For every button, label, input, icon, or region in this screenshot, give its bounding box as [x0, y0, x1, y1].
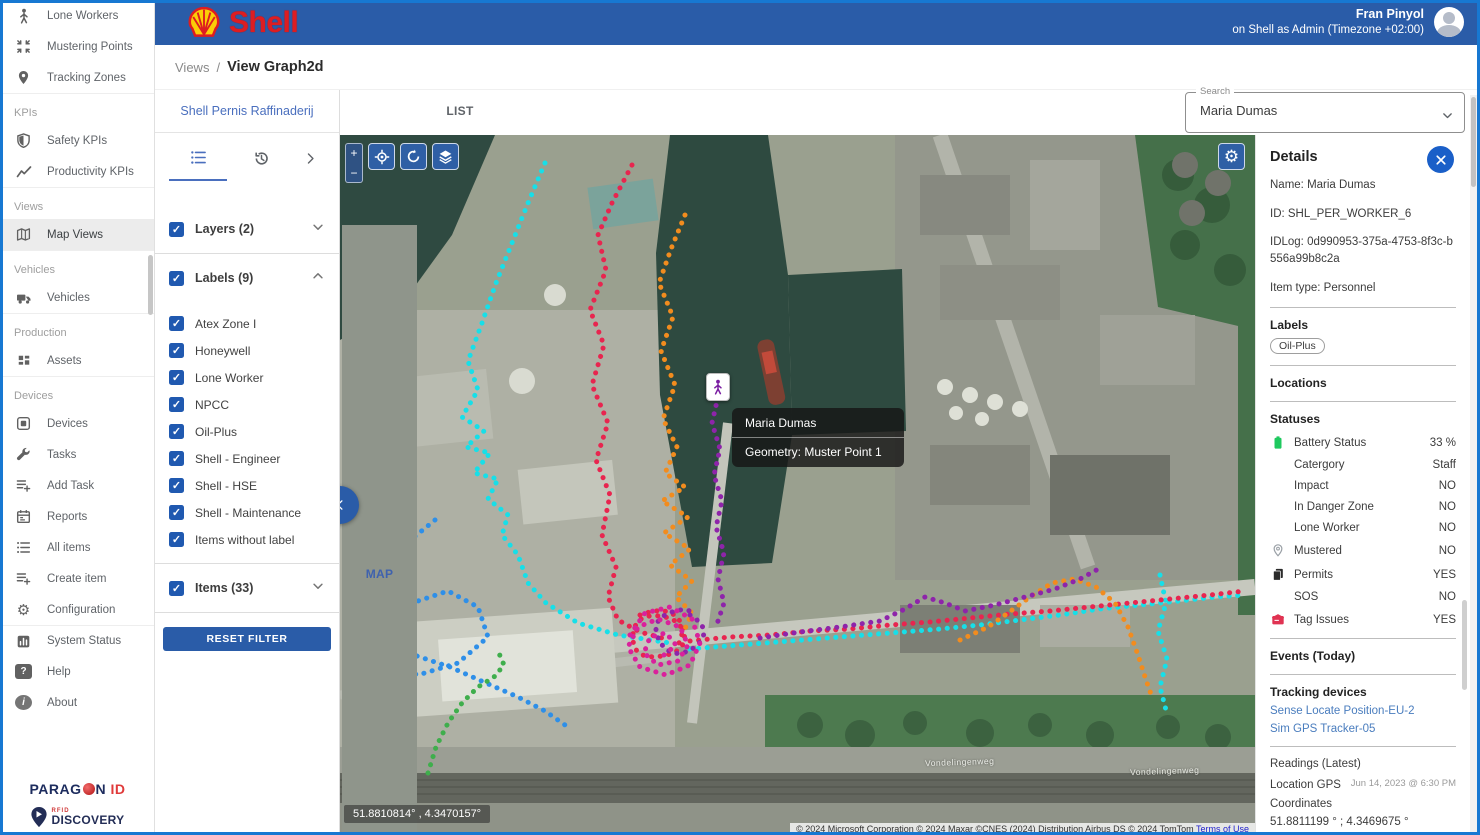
sidebar-item-assets[interactable]: Assets: [0, 345, 154, 376]
filter-panel: Shell Pernis Raffinaderij ✓ Layers (2) ✓…: [155, 90, 340, 835]
chevron-right-icon[interactable]: [295, 135, 325, 181]
reading-label: Coordinates: [1270, 796, 1341, 813]
chevron-down-icon[interactable]: [311, 220, 325, 239]
shell-wordmark: Shell: [229, 6, 298, 40]
terms-of-use-link[interactable]: Terms of Use: [1196, 824, 1249, 834]
cursor-coordinates: 51.8810814° , 4.3470157°: [344, 805, 490, 823]
refresh-button[interactable]: [400, 143, 427, 170]
map-canvas[interactable]: Vondelingenweg Vondelingenweg + − ⚙ Mari…: [340, 135, 1255, 835]
label-checkbox-shell-hse[interactable]: ✓Shell - HSE: [155, 472, 339, 499]
sidebar-scrollbar[interactable]: [148, 255, 153, 315]
discovery-pin-icon: [31, 807, 47, 827]
detail-id: ID: SHL_PER_WORKER_6: [1270, 206, 1456, 223]
filter-group-labels[interactable]: ✓ Labels (9): [155, 254, 339, 302]
filter-group-items[interactable]: ✓ Items (33): [155, 564, 339, 612]
map-tooltip: Maria Dumas Geometry: Muster Point 1: [732, 408, 904, 467]
sidebar-item-help[interactable]: ?Help: [0, 656, 154, 687]
shell-pecten-icon: [183, 4, 225, 42]
detail-name: Name: Maria Dumas: [1270, 177, 1456, 194]
map-attribution: © 2024 Microsoft Corporation © 2024 Maxa…: [790, 823, 1255, 835]
checkbox-icon[interactable]: ✓: [169, 271, 184, 286]
label-checkbox-items-without-label[interactable]: ✓Items without label: [155, 526, 339, 553]
page-title: View Graph2d: [227, 59, 323, 75]
details-scrollbar[interactable]: [1462, 600, 1467, 690]
filter-group-layers[interactable]: ✓ Layers (2): [155, 205, 339, 253]
chevron-up-icon[interactable]: [311, 269, 325, 288]
close-details-button[interactable]: [1427, 146, 1454, 173]
tracking-device-link[interactable]: Sim GPS Tracker-05: [1270, 723, 1456, 735]
sidebar: Lone Workers Mustering Points Tracking Z…: [0, 0, 155, 835]
filter-panel-tabs: [155, 133, 339, 183]
muster-pin-icon: [1270, 543, 1286, 558]
zoom-out-button[interactable]: −: [350, 166, 357, 180]
sidebar-item-add-task[interactable]: Add Task: [0, 470, 154, 501]
detail-item-type: Item type: Personnel: [1270, 280, 1456, 297]
label-checkbox-npcc[interactable]: ✓NPCC: [155, 391, 339, 418]
search-input[interactable]: [1198, 102, 1418, 119]
history-tab[interactable]: [232, 135, 290, 181]
zoom-in-button[interactable]: +: [350, 146, 357, 160]
tab-map[interactable]: MAP: [342, 225, 417, 835]
layers-button[interactable]: [432, 143, 459, 170]
checkbox-icon[interactable]: ✓: [169, 316, 184, 331]
sidebar-section-devices: Devices: [0, 376, 154, 408]
reading-coordinates: 51.8811199 ° ; 4.3469675 °: [1270, 814, 1456, 831]
sidebar-section-views: Views: [0, 187, 154, 219]
checkbox-icon[interactable]: ✓: [169, 370, 184, 385]
checkbox-icon[interactable]: ✓: [169, 424, 184, 439]
tracking-device-link[interactable]: Sense Locate Position-EU-2: [1270, 705, 1456, 717]
tag-icon: [1270, 612, 1286, 627]
bar-chart-icon: [15, 633, 32, 650]
label-checkbox-lone-worker[interactable]: ✓Lone Worker: [155, 364, 339, 391]
readings-header: Readings (Latest): [1270, 756, 1456, 773]
breadcrumb-parent[interactable]: Views: [175, 60, 209, 75]
info-icon: i: [15, 695, 32, 710]
truck-icon: [15, 289, 32, 306]
page-scrollbar[interactable]: [1470, 95, 1477, 832]
chevron-down-icon[interactable]: [311, 579, 325, 598]
status-row-tag-issues: Tag IssuesYES: [1270, 612, 1456, 627]
tooltip-geometry: Geometry: Muster Point 1: [732, 438, 904, 467]
list-plus-icon: [15, 570, 32, 587]
sidebar-item-safety-kpis[interactable]: Safety KPIs: [0, 125, 154, 156]
sidebar-logos: PARAGN ID RFIDDISCOVERY: [0, 781, 155, 827]
list-icon: [15, 539, 32, 556]
sidebar-section-kpis: KPIs: [0, 93, 154, 125]
checkbox-icon[interactable]: ✓: [169, 451, 184, 466]
filter-list-tab[interactable]: [169, 135, 227, 181]
view-tab-bar: MAP LIST Search: [340, 90, 1480, 135]
sidebar-section-vehicles: Vehicles: [0, 250, 154, 282]
sidebar-item-tracking-zones[interactable]: Tracking Zones: [0, 62, 154, 93]
user-menu[interactable]: Fran Pinyol on Shell as Admin (Timezone …: [1232, 6, 1464, 38]
user-name: Fran Pinyol: [1232, 6, 1424, 23]
app-window: Lone Workers Mustering Points Tracking Z…: [0, 0, 1480, 835]
sidebar-item-vehicles[interactable]: Vehicles: [0, 282, 154, 313]
map-pin-icon: [15, 69, 32, 86]
status-row-category: CatergoryStaff: [1270, 459, 1456, 471]
status-row-sos: SOSNO: [1270, 591, 1456, 603]
gear-icon: ⚙: [15, 601, 32, 618]
sidebar-item-mustering-points[interactable]: Mustering Points: [0, 31, 154, 62]
checkbox-icon[interactable]: ✓: [169, 478, 184, 493]
sidebar-item-label: Lone Workers: [47, 10, 118, 22]
label-checkbox-shell-engineer[interactable]: ✓Shell - Engineer: [155, 445, 339, 472]
paragon-o-icon: [83, 783, 95, 795]
question-icon: ?: [15, 664, 32, 679]
statuses-header: Statuses: [1270, 412, 1456, 426]
user-context: on Shell as Admin (Timezone +02:00): [1232, 23, 1424, 39]
shell-logo: Shell: [183, 4, 298, 42]
events-header: Events (Today): [1270, 649, 1456, 663]
label-chip[interactable]: Oil-Plus: [1270, 338, 1325, 354]
status-row-mustered: MusteredNO: [1270, 543, 1456, 558]
breadcrumb: Views / View Graph2d: [155, 45, 1480, 90]
sidebar-item-tasks[interactable]: Tasks: [0, 439, 154, 470]
grid-icon: [15, 352, 32, 369]
sidebar-item-all-items[interactable]: All items: [0, 532, 154, 563]
rfid-discovery-logo: RFIDDISCOVERY: [0, 807, 155, 827]
locate-button[interactable]: [368, 143, 395, 170]
search-box[interactable]: Search: [1185, 92, 1465, 133]
zoom-control[interactable]: + −: [345, 143, 363, 183]
sidebar-item-configuration[interactable]: ⚙Configuration: [0, 594, 154, 625]
map-settings-button[interactable]: ⚙: [1218, 143, 1245, 170]
sidebar-item-map-views[interactable]: Map Views: [0, 219, 154, 250]
device-icon: [15, 415, 32, 432]
sidebar-item-lone-workers[interactable]: Lone Workers: [0, 0, 154, 31]
label-filter-list: ✓Atex Zone I ✓Honeywell ✓Lone Worker ✓NP…: [155, 302, 339, 563]
reading-type: Location GPS: [1270, 777, 1341, 794]
checkbox-icon[interactable]: ✓: [169, 222, 184, 237]
status-row-danger-zone: In Danger ZoneNO: [1270, 501, 1456, 513]
tracking-devices-header: Tracking devices: [1270, 685, 1456, 699]
paragon-id-logo: PARAGN ID: [0, 781, 155, 797]
muster-arrows-icon: [15, 38, 32, 55]
sidebar-item-about[interactable]: iAbout: [0, 687, 154, 718]
checkbox-icon[interactable]: ✓: [169, 581, 184, 596]
reading-timestamp: Jun 14, 2023 @ 6:30 PM: [1351, 778, 1456, 789]
map-icon: [15, 226, 32, 243]
label-checkbox-oil-plus[interactable]: ✓Oil-Plus: [155, 418, 339, 445]
calendar-icon: [15, 508, 32, 525]
checkbox-icon[interactable]: ✓: [169, 532, 184, 547]
chevron-down-icon[interactable]: [1441, 109, 1454, 127]
label-checkbox-atex[interactable]: ✓Atex Zone I: [155, 310, 339, 337]
battery-icon: [1270, 435, 1286, 450]
sidebar-item-create-item[interactable]: Create item: [0, 563, 154, 594]
tooltip-name: Maria Dumas: [732, 408, 904, 437]
sidebar-section-production: Production: [0, 313, 154, 345]
status-row-lone-worker: Lone WorkerNO: [1270, 522, 1456, 534]
label-checkbox-shell-maintenance[interactable]: ✓Shell - Maintenance: [155, 499, 339, 526]
avatar[interactable]: [1434, 7, 1464, 37]
status-row-permits: PermitsYES: [1270, 567, 1456, 582]
detail-idlog: IDLog: 0d990953-375a-4753-8f3c-b556a99b8…: [1270, 234, 1456, 267]
worker-marker[interactable]: [706, 373, 730, 401]
shield-icon: [15, 132, 32, 149]
label-checkbox-honeywell[interactable]: ✓Honeywell: [155, 337, 339, 364]
checkbox-icon[interactable]: ✓: [169, 397, 184, 412]
sidebar-item-productivity-kpis[interactable]: Productivity KPIs: [0, 156, 154, 187]
tab-list[interactable]: LIST: [430, 90, 490, 132]
trend-line-icon: [15, 163, 32, 180]
wrench-icon: [15, 446, 32, 463]
satellite-map-image: [340, 135, 1255, 835]
labels-header: Labels: [1270, 318, 1456, 332]
sidebar-item-reports[interactable]: Reports: [0, 501, 154, 532]
list-plus-icon: [15, 477, 32, 494]
walking-person-icon: [15, 7, 32, 24]
site-tab[interactable]: Shell Pernis Raffinaderij: [155, 90, 339, 133]
status-row-battery: Battery Status33 %: [1270, 435, 1456, 450]
reset-filter-button[interactable]: RESET FILTER: [163, 627, 331, 651]
documents-icon: [1270, 567, 1286, 582]
checkbox-icon[interactable]: ✓: [169, 343, 184, 358]
checkbox-icon[interactable]: ✓: [169, 505, 184, 520]
top-header: Shell Fran Pinyol on Shell as Admin (Tim…: [155, 0, 1480, 45]
sidebar-item-system-status[interactable]: System Status: [0, 625, 154, 656]
locations-header: Locations: [1270, 376, 1456, 390]
sidebar-item-devices[interactable]: Devices: [0, 408, 154, 439]
search-label: Search: [1196, 86, 1234, 97]
details-panel: Details Name: Maria Dumas ID: SHL_PER_WO…: [1255, 135, 1468, 835]
status-row-impact: ImpactNO: [1270, 480, 1456, 492]
